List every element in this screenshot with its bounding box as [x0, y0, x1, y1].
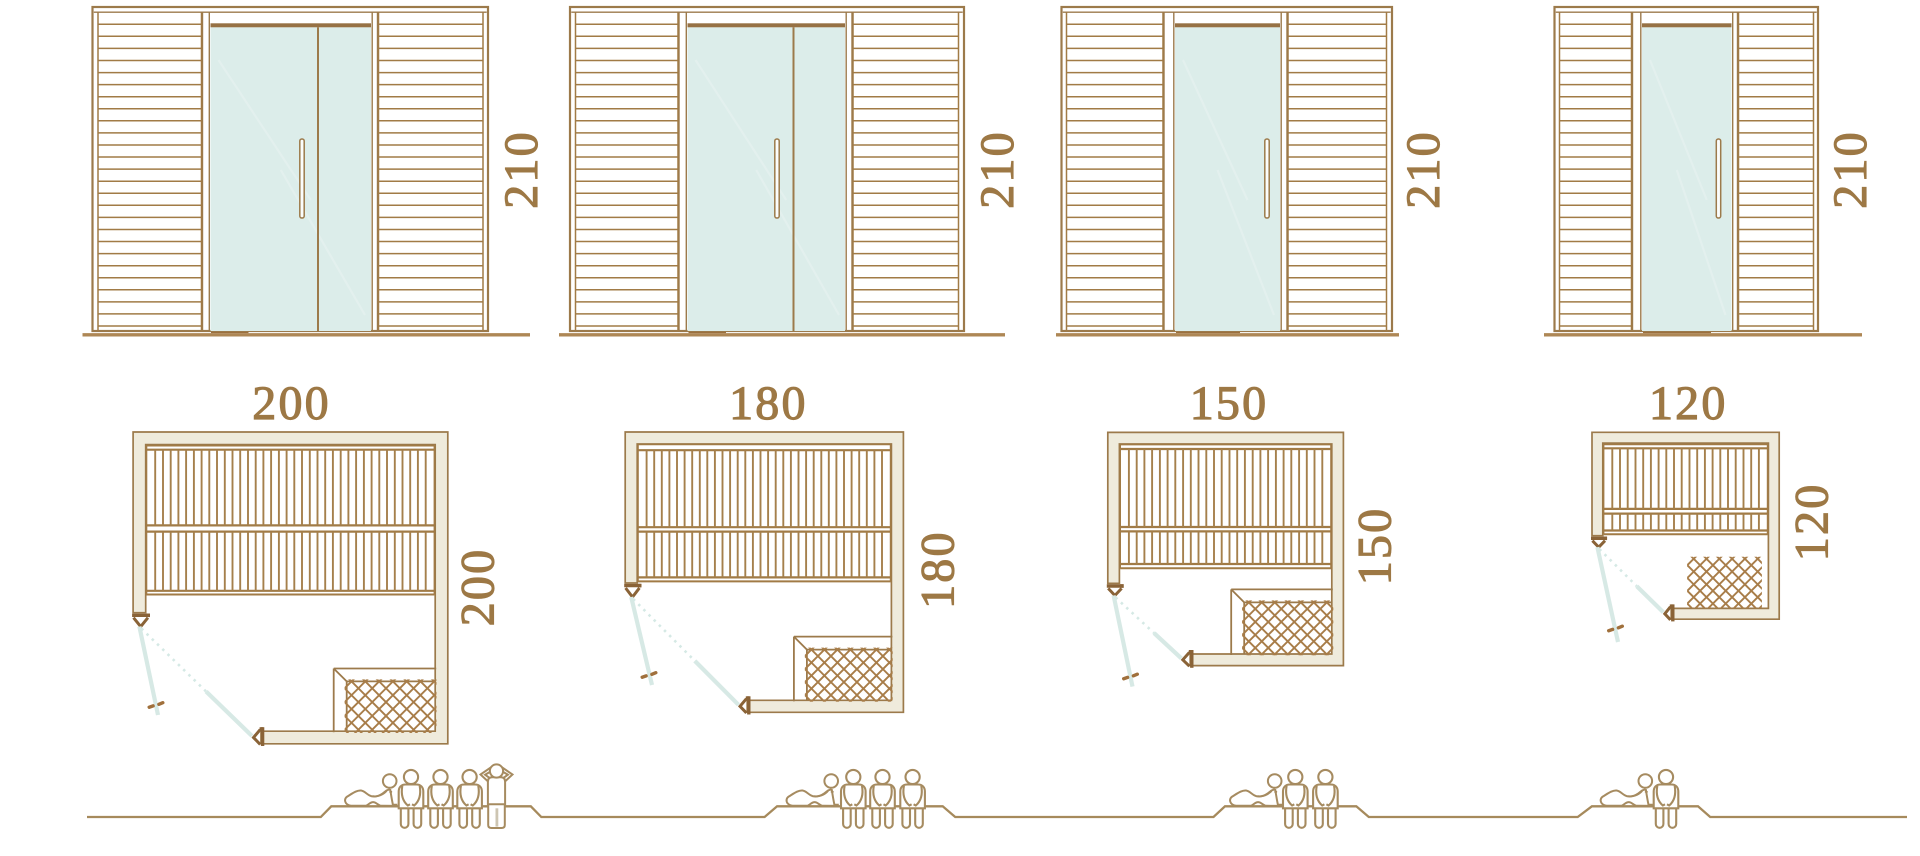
svg-text:200: 200	[451, 548, 504, 627]
svg-text:180: 180	[729, 377, 808, 430]
svg-text:120: 120	[1649, 377, 1728, 430]
svg-text:200: 200	[252, 377, 331, 430]
svg-text:210: 210	[971, 130, 1024, 209]
svg-text:210: 210	[495, 130, 548, 209]
svg-text:150: 150	[1190, 377, 1269, 430]
svg-text:210: 210	[1397, 130, 1450, 209]
svg-text:210: 210	[1824, 130, 1877, 209]
svg-text:180: 180	[912, 530, 965, 609]
svg-text:120: 120	[1786, 483, 1839, 562]
svg-text:150: 150	[1349, 507, 1402, 586]
